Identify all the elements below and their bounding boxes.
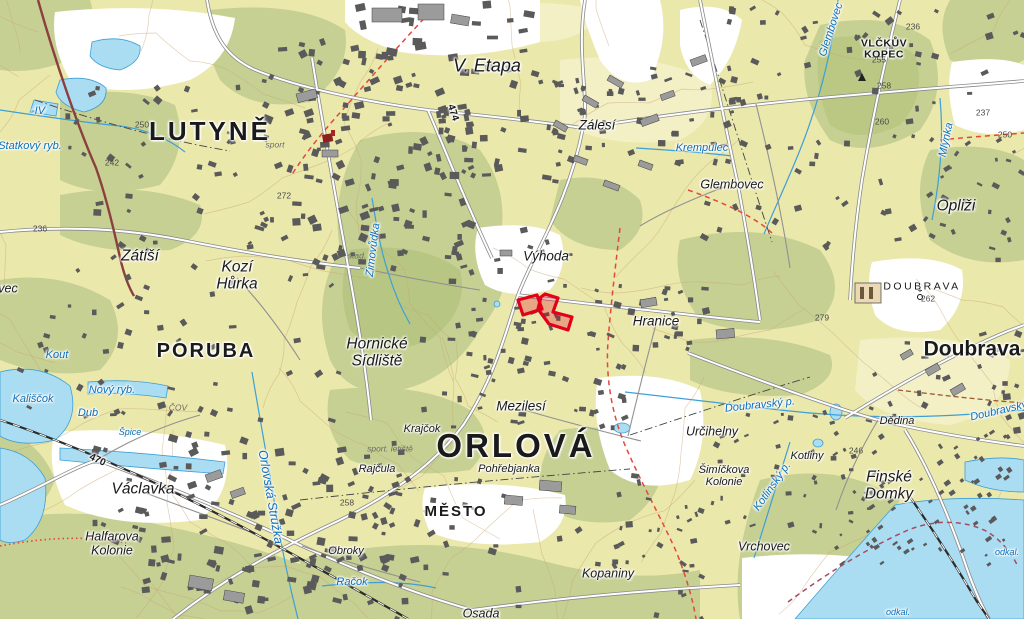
church-symbol	[918, 295, 923, 300]
topographic-map[interactable]: LUTYNĚV. EtapaVLČKŮV KOPECZálesíGlembove…	[0, 0, 1024, 619]
factory-symbol	[855, 283, 881, 303]
map-canvas	[0, 0, 1024, 619]
